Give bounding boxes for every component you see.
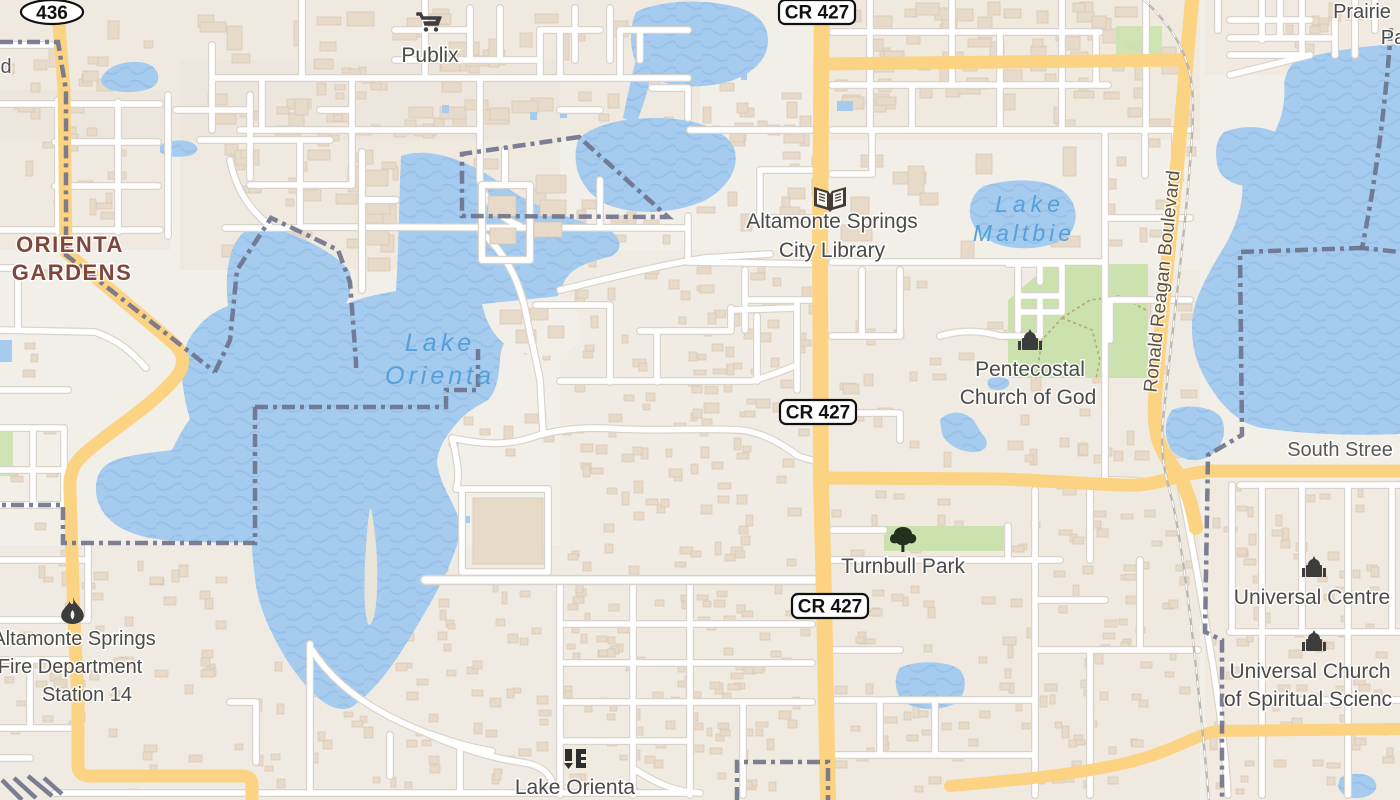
svg-text:Maltbie: Maltbie bbox=[973, 220, 1075, 246]
svg-text:Lake Orienta: Lake Orienta bbox=[515, 776, 636, 799]
svg-text:South Stree: South Stree bbox=[1287, 439, 1393, 461]
svg-text:d: d bbox=[0, 56, 11, 78]
svg-text:Pentecostal: Pentecostal bbox=[975, 358, 1085, 381]
svg-text:Church of God: Church of God bbox=[960, 386, 1097, 409]
svg-text:CR 427: CR 427 bbox=[785, 3, 849, 24]
svg-text:CR 427: CR 427 bbox=[798, 597, 862, 618]
svg-text:Altamonte Springs: Altamonte Springs bbox=[0, 628, 156, 650]
svg-text:Universal Church: Universal Church bbox=[1229, 660, 1390, 683]
svg-text:Universal Centre: Universal Centre bbox=[1234, 586, 1390, 609]
svg-text:City Library: City Library bbox=[779, 239, 886, 262]
svg-text:Pa: Pa bbox=[1381, 27, 1400, 49]
svg-text:Lake: Lake bbox=[405, 329, 475, 357]
svg-text:of Spiritual Scienc: of Spiritual Scienc bbox=[1224, 688, 1392, 711]
svg-text:GARDENS: GARDENS bbox=[12, 260, 133, 285]
svg-text:Altamonte Springs: Altamonte Springs bbox=[746, 210, 918, 233]
svg-text:Orienta: Orienta bbox=[385, 362, 495, 390]
svg-text:ORIENTA: ORIENTA bbox=[16, 232, 124, 257]
svg-text:Station 14: Station 14 bbox=[42, 684, 132, 706]
svg-text:Turnbull Park: Turnbull Park bbox=[841, 555, 966, 578]
svg-text:CR 427: CR 427 bbox=[786, 403, 850, 424]
svg-text:Lake: Lake bbox=[995, 191, 1065, 217]
svg-text:Prairie: Prairie bbox=[1333, 1, 1391, 23]
svg-text:436: 436 bbox=[36, 3, 68, 24]
svg-text:Fire Department: Fire Department bbox=[0, 656, 143, 678]
svg-text:Publix: Publix bbox=[401, 44, 459, 67]
